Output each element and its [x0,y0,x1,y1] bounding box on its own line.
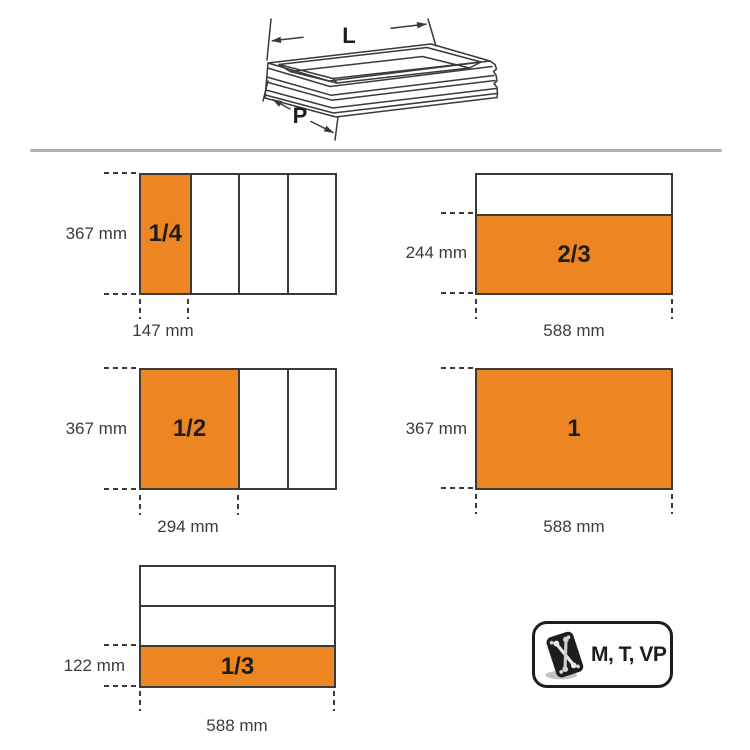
extension-dash [104,293,138,295]
module-twothirds-height-label: 244 mm [370,243,467,263]
badge-label: M, T, VP [591,643,666,667]
extension-dash [475,494,477,514]
module-third-diagram: 1/3 [139,565,336,688]
extension-dash [187,299,189,319]
module-twothirds-highlight: 2/3 [477,214,671,293]
module-third-empty-slot [141,567,334,605]
extension-dash [139,691,141,711]
extension-dash [671,494,673,514]
module-full-highlight: 1 [477,370,671,488]
module-full-diagram: 1 [475,368,673,490]
module-half-highlight: 1/2 [141,370,238,488]
extension-dash [475,299,477,319]
extension-dash [104,488,138,490]
drawer-isometric-drawing: L P [0,0,750,152]
extension-dash [441,292,473,294]
extension-dash [104,172,138,174]
compatibility-badge: M, T, VP [532,621,673,688]
depth-dimension-label: P [293,103,308,128]
module-half-width-label: 294 mm [138,517,238,537]
extension-dash [441,212,473,214]
module-third-width-label: 588 mm [187,716,287,736]
wrench-tray-icon [537,627,593,683]
module-quarter-empty-slot [238,175,287,293]
module-third-highlight: 1/3 [141,645,334,686]
module-quarter-highlight: 1/4 [141,175,190,293]
module-full-width-label: 588 mm [524,517,624,537]
module-full-height-label: 367 mm [370,419,467,439]
module-quarter-width-label: 147 mm [113,321,213,341]
module-half-height-label: 367 mm [30,419,127,439]
length-extension-line [267,19,271,60]
extension-dash [671,299,673,319]
extension-dash [441,487,473,489]
module-quarter-diagram: 1/4 [139,173,337,295]
extension-dash [237,495,239,515]
module-twothirds-empty-slot [477,175,671,214]
module-half-diagram: 1/2 [139,368,337,490]
module-quarter-empty-slot [287,175,336,293]
drawer-module-catalog-page: L P 1/4 367 mm 147 mm 2/3 244 mm 588 mm … [0,0,750,750]
module-third-height-label: 122 mm [28,656,125,676]
module-half-empty-slot [238,370,287,488]
module-third-empty-slot [141,605,334,645]
extension-dash [441,367,473,369]
extension-dash [139,495,141,515]
module-quarter-height-label: 367 mm [30,224,127,244]
extension-dash [104,644,138,646]
length-dimension-label: L [342,23,355,48]
extension-dash [139,299,141,319]
extension-dash [333,691,335,711]
module-half-empty-slot [287,370,336,488]
extension-dash [104,367,138,369]
extension-dash [104,685,138,687]
module-twothirds-width-label: 588 mm [524,321,624,341]
module-twothirds-diagram: 2/3 [475,173,673,295]
section-divider-line [30,149,722,152]
module-quarter-empty-slot [190,175,239,293]
